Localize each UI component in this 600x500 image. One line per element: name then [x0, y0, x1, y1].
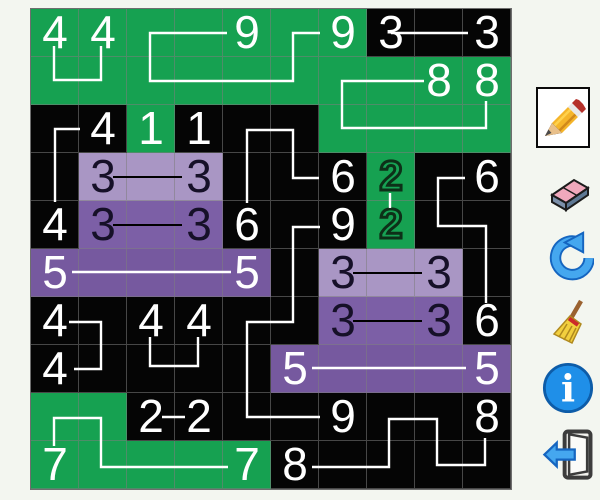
grid-cell[interactable]: 7 — [31, 441, 79, 489]
grid-cell[interactable] — [31, 105, 79, 153]
clue-number: 3 — [186, 201, 211, 247]
clue-number: 9 — [330, 9, 355, 55]
grid-cell[interactable] — [31, 393, 79, 441]
grid-cell[interactable] — [79, 249, 127, 297]
exit-tool-button[interactable] — [540, 426, 596, 482]
grid-cell[interactable]: 2 — [367, 153, 415, 201]
grid-cell[interactable] — [127, 57, 175, 105]
grid-cell[interactable]: 5 — [223, 249, 271, 297]
grid-cell[interactable] — [367, 297, 415, 345]
clue-number: 4 — [138, 297, 163, 343]
grid-cell[interactable]: 4 — [31, 9, 79, 57]
clue-number: 3 — [474, 9, 499, 55]
grid-cell[interactable]: 9 — [319, 393, 367, 441]
grid-cell[interactable] — [367, 57, 415, 105]
grid-cell[interactable] — [175, 57, 223, 105]
clue-number: 5 — [42, 249, 67, 295]
grid-cell[interactable] — [319, 345, 367, 393]
grid-cell[interactable] — [79, 57, 127, 105]
clue-number: 6 — [234, 201, 259, 247]
grid-cell[interactable] — [79, 393, 127, 441]
grid-cell[interactable]: 4 — [127, 297, 175, 345]
grid-cell[interactable]: 2 — [127, 393, 175, 441]
grid-cell[interactable] — [463, 441, 511, 489]
grid-cell[interactable]: 6 — [463, 153, 511, 201]
grid-cell[interactable]: 4 — [31, 345, 79, 393]
grid-cell[interactable]: 7 — [223, 441, 271, 489]
grid-cell[interactable]: 3 — [367, 9, 415, 57]
grid-cell[interactable] — [127, 249, 175, 297]
clue-number: 4 — [42, 9, 67, 55]
grid-cell[interactable]: 3 — [175, 201, 223, 249]
clue-number: 9 — [234, 9, 259, 55]
clean-tool-button[interactable] — [540, 294, 596, 350]
grid-cell[interactable]: 9 — [319, 9, 367, 57]
clue-number: 7 — [234, 441, 259, 487]
clue-number: 3 — [186, 153, 211, 199]
undo-tool-button[interactable] — [540, 228, 596, 284]
undo-icon — [542, 228, 594, 284]
grid-cell[interactable] — [415, 153, 463, 201]
grid-cell[interactable]: 3 — [319, 297, 367, 345]
grid-cell[interactable]: 6 — [463, 297, 511, 345]
grid-cell[interactable]: 3 — [415, 249, 463, 297]
clue-number: 4 — [42, 201, 67, 247]
grid-cell[interactable]: 4 — [31, 297, 79, 345]
clue-number: 4 — [186, 297, 211, 343]
eraser-icon — [542, 168, 594, 216]
clue-number: 3 — [378, 9, 403, 55]
grid-cell[interactable] — [79, 441, 127, 489]
clue-number: 3 — [426, 249, 451, 295]
grid-cell[interactable] — [271, 297, 319, 345]
clue-number: 8 — [282, 441, 307, 487]
clue-number: 5 — [282, 345, 307, 391]
grid-cell[interactable] — [223, 105, 271, 153]
grid-cell[interactable]: 4 — [31, 201, 79, 249]
clue-number: 9 — [330, 393, 355, 439]
grid-cell[interactable] — [319, 57, 367, 105]
grid-cell[interactable]: 4 — [79, 105, 127, 153]
grid-cell[interactable] — [415, 201, 463, 249]
info-glyph: i — [561, 367, 575, 411]
pencil-tool-button[interactable] — [536, 87, 590, 148]
info-tool-button[interactable]: i — [540, 360, 596, 416]
clue-number: 6 — [330, 153, 355, 199]
grid-cell[interactable]: 8 — [463, 393, 511, 441]
grid-cell[interactable]: 1 — [127, 105, 175, 153]
clue-number: 7 — [42, 441, 67, 487]
grid-cell[interactable]: 4 — [79, 9, 127, 57]
grid-cell[interactable] — [271, 393, 319, 441]
grid-cell[interactable] — [271, 249, 319, 297]
grid-cell[interactable] — [127, 9, 175, 57]
clue-number: 4 — [42, 297, 67, 343]
grid-cell[interactable] — [223, 393, 271, 441]
grid-cell[interactable]: 6 — [223, 201, 271, 249]
grid-cell[interactable]: 3 — [175, 153, 223, 201]
grid-cell[interactable]: 9 — [319, 201, 367, 249]
grid-cell[interactable]: 3 — [319, 249, 367, 297]
broom-icon — [544, 297, 592, 347]
grid-cell[interactable] — [319, 441, 367, 489]
clue-number: 6 — [474, 297, 499, 343]
grid-cell[interactable]: 8 — [271, 441, 319, 489]
grid-cell[interactable] — [175, 441, 223, 489]
clue-number: 2 — [379, 155, 401, 197]
grid-cell[interactable]: 3 — [463, 9, 511, 57]
grid-cell[interactable]: 8 — [463, 57, 511, 105]
clue-number: 4 — [90, 9, 115, 55]
clue-number: 1 — [138, 105, 163, 151]
grid-cell[interactable]: 9 — [223, 9, 271, 57]
grid-cell[interactable]: 3 — [79, 153, 127, 201]
clue-number: 2 — [138, 393, 163, 439]
grid-cell[interactable] — [463, 249, 511, 297]
grid-cell[interactable] — [175, 249, 223, 297]
grid-cell[interactable] — [127, 345, 175, 393]
grid-cell[interactable]: 1 — [175, 105, 223, 153]
clue-number: 5 — [474, 345, 499, 391]
grid-cell[interactable]: 8 — [415, 57, 463, 105]
grid-cell[interactable] — [31, 57, 79, 105]
eraser-tool-button[interactable] — [540, 164, 596, 220]
grid-cell[interactable] — [271, 57, 319, 105]
puzzle-grid[interactable]: 4499338841133626433692553344433645522987… — [30, 8, 512, 490]
grid-cell[interactable]: 5 — [31, 249, 79, 297]
grid-cell[interactable] — [127, 201, 175, 249]
grid-cell[interactable] — [367, 105, 415, 153]
grid-cell[interactable] — [223, 297, 271, 345]
grid-cell[interactable] — [367, 393, 415, 441]
grid-cell[interactable] — [271, 9, 319, 57]
clue-number: 3 — [330, 297, 355, 343]
grid-cell[interactable] — [319, 105, 367, 153]
grid-cell[interactable] — [415, 9, 463, 57]
clue-number: 4 — [42, 345, 67, 391]
clue-number: 8 — [474, 57, 499, 103]
grid-cell[interactable]: 2 — [367, 201, 415, 249]
grid-cell[interactable] — [271, 153, 319, 201]
clue-number: 2 — [186, 393, 211, 439]
clue-number: 8 — [426, 57, 451, 103]
clue-number: 2 — [379, 203, 401, 245]
grid-cell[interactable]: 3 — [415, 297, 463, 345]
grid-cell[interactable] — [367, 345, 415, 393]
clue-number: 4 — [90, 105, 115, 151]
grid-cell[interactable] — [367, 249, 415, 297]
grid-cell[interactable]: 3 — [79, 201, 127, 249]
info-icon: i — [541, 361, 595, 415]
grid-cell[interactable] — [127, 441, 175, 489]
grid-cell[interactable] — [271, 105, 319, 153]
grid-cell[interactable] — [79, 297, 127, 345]
clue-number: 6 — [474, 153, 499, 199]
grid-cell[interactable] — [31, 153, 79, 201]
grid-cell[interactable] — [463, 105, 511, 153]
grid-cell[interactable] — [175, 345, 223, 393]
grid-cell[interactable]: 2 — [175, 393, 223, 441]
grid-cell[interactable] — [223, 57, 271, 105]
clue-number: 3 — [426, 297, 451, 343]
grid-cell[interactable] — [415, 105, 463, 153]
grid-cell[interactable]: 5 — [463, 345, 511, 393]
clue-number: 1 — [186, 105, 211, 151]
grid-cell[interactable]: 6 — [319, 153, 367, 201]
grid-cell[interactable] — [79, 345, 127, 393]
grid-cell[interactable] — [223, 345, 271, 393]
grid-cell[interactable] — [271, 201, 319, 249]
clue-number: 3 — [330, 249, 355, 295]
grid-cell[interactable] — [223, 153, 271, 201]
grid-cell[interactable] — [463, 201, 511, 249]
grid-cell[interactable] — [367, 441, 415, 489]
grid-cell[interactable] — [175, 9, 223, 57]
clue-number: 5 — [234, 249, 259, 295]
clue-number: 9 — [330, 201, 355, 247]
exit-door-icon — [541, 425, 595, 483]
grid-cell[interactable] — [415, 393, 463, 441]
clue-number: 3 — [90, 153, 115, 199]
clue-number: 8 — [474, 393, 499, 439]
grid-cell[interactable] — [415, 441, 463, 489]
grid-cell[interactable] — [127, 153, 175, 201]
grid-cell[interactable]: 5 — [271, 345, 319, 393]
grid-cell[interactable]: 4 — [175, 297, 223, 345]
grid-cell[interactable] — [415, 345, 463, 393]
pencil-icon — [539, 92, 587, 144]
clue-number: 3 — [90, 201, 115, 247]
